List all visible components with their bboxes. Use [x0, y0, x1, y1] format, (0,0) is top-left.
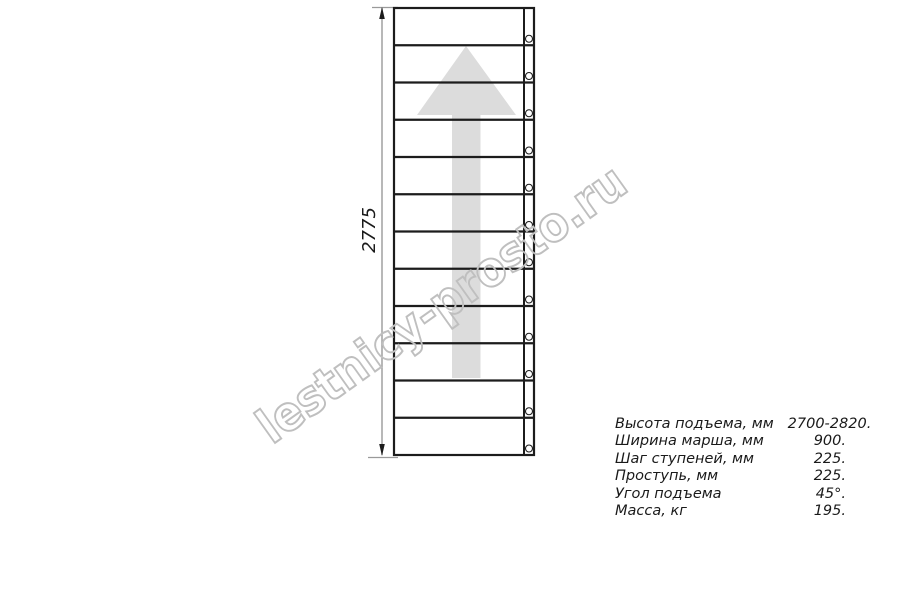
spec-row: Шаг ступеней, мм225. [615, 451, 846, 468]
spec-label: Угол подъема [615, 486, 722, 503]
spec-label: Масса, кг [615, 503, 687, 520]
stringer-bolt-icon [526, 445, 533, 452]
stringer-bolt-icon [526, 408, 533, 415]
dimension-label: 2775 [359, 207, 380, 253]
spec-label: Шаг ступеней, мм [615, 451, 754, 468]
spec-row: Высота подъема, мм2700-2820. [615, 416, 846, 433]
spec-value: 225. [814, 451, 846, 468]
spec-row: Ширина марша, мм900. [615, 433, 846, 450]
stringer-bolt-icon [526, 371, 533, 378]
spec-row: Угол подъема45°. [615, 486, 846, 503]
stringer-bolt-icon [526, 184, 533, 191]
stringer-bolt-icon [526, 110, 533, 117]
stringer-bolt-icon [526, 296, 533, 303]
spec-value: 900. [814, 433, 846, 450]
spec-value: 45°. [816, 486, 846, 503]
spec-value: 2700-2820. [788, 416, 872, 433]
spec-label: Ширина марша, мм [615, 433, 764, 450]
dimension-arrowhead-up-icon [379, 7, 385, 19]
stringer-bolt-icon [526, 35, 533, 42]
stringer-bolt-icon [526, 333, 533, 340]
spec-label: Высота подъема, мм [615, 416, 774, 433]
spec-label: Проступь, мм [615, 468, 718, 485]
spec-value: 225. [814, 468, 846, 485]
stringer-bolt-icon [526, 147, 533, 154]
spec-row: Проступь, мм225. [615, 468, 846, 485]
staircase-drawing-page: 2775 lestnicy-prosto.ru Высота подъема, … [0, 0, 900, 600]
dimension-arrowhead-down-icon [379, 444, 385, 456]
spec-row: Масса, кг195. [615, 503, 846, 520]
spec-value: 195. [814, 503, 846, 520]
stringer-bolt-icon [526, 73, 533, 80]
specs-table: Высота подъема, мм2700-2820.Ширина марша… [615, 416, 846, 520]
